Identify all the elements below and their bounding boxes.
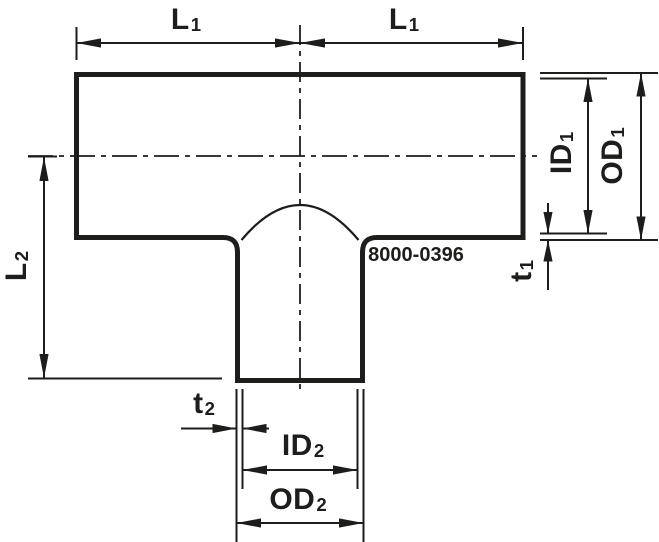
- arrowhead-right: [498, 38, 523, 47]
- l2-arrow-down: [39, 354, 48, 378]
- dimension-l2: [28, 157, 222, 379]
- dim-label-t1-base: t: [505, 271, 538, 282]
- dim-label-od2-sub: 2: [316, 494, 326, 515]
- dim-label-od1-sub: 1: [607, 127, 628, 137]
- tee-drawing-linework: [0, 0, 659, 542]
- id1-arrow-down: [583, 210, 592, 234]
- dim-label-l1-left-base: L: [171, 3, 190, 36]
- dim-label-t2-sub: 2: [205, 398, 215, 419]
- dim-label-id2: ID2: [282, 431, 324, 461]
- od2-arrow-left: [237, 518, 262, 527]
- dim-label-od1-base: OD: [596, 139, 629, 185]
- od1-arrow-up: [636, 73, 645, 97]
- dim-label-l1-left: L1: [171, 5, 201, 35]
- arrowhead-center-left: [300, 38, 325, 47]
- dim-label-id1-base: ID: [545, 143, 578, 174]
- dim-label-id2-base: ID: [282, 429, 313, 462]
- dim-label-id1: ID1: [547, 132, 577, 174]
- dim-label-l1-right: L1: [389, 5, 419, 35]
- t2-arrow-left: [243, 424, 267, 433]
- dim-label-t2: t2: [193, 389, 215, 419]
- t2-arrow-right: [213, 424, 237, 433]
- dim-label-od2-base: OD: [269, 483, 315, 516]
- id1-arrow-up: [583, 79, 592, 103]
- arrowhead-center-right: [275, 38, 300, 47]
- dim-label-l1-right-base: L: [389, 3, 408, 36]
- od1-arrow-down: [636, 217, 645, 241]
- dim-label-l1-left-sub: 1: [191, 14, 201, 35]
- dim-label-od2: OD2: [269, 485, 326, 515]
- od2-arrow-right: [339, 518, 364, 527]
- id2-arrow-right: [333, 465, 358, 474]
- dim-label-od1: OD1: [598, 127, 628, 184]
- t1-arrow-up: [543, 240, 552, 262]
- dim-label-l2: L2: [2, 251, 32, 281]
- part-number: 8000-0396: [368, 245, 464, 265]
- l2-arrow-up: [39, 157, 48, 181]
- dim-label-l2-base: L: [0, 262, 33, 281]
- dim-label-t1: t1: [507, 260, 537, 282]
- dim-label-l1-right-sub: 1: [409, 14, 419, 35]
- arrowhead-left: [77, 38, 102, 47]
- dim-label-id1-sub: 1: [556, 132, 577, 142]
- dim-label-t1-sub: 1: [516, 260, 537, 270]
- technical-drawing: L1 L1 ID1 OD1 t1 L2 t2 ID2 OD2 8000-0396: [0, 0, 659, 542]
- t1-arrow-down: [543, 212, 552, 234]
- dim-label-t2-base: t: [193, 387, 204, 420]
- dim-label-l2-sub: 2: [11, 251, 32, 261]
- id2-arrow-left: [243, 465, 268, 474]
- dim-label-id2-sub: 2: [314, 440, 324, 461]
